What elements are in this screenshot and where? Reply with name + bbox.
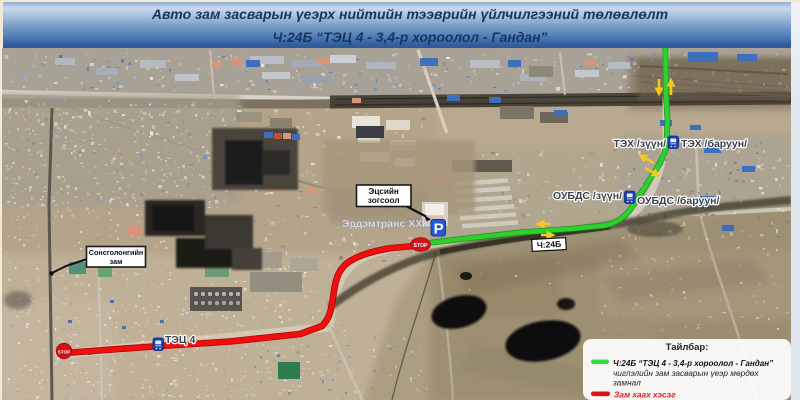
svg-text:Зам хаах хэсэг: Зам хаах хэсэг [614,390,676,400]
svg-text:ТЭЦ 4: ТЭЦ 4 [165,334,195,346]
svg-text:STOP: STOP [413,243,428,249]
svg-text:Сонсголонгийн: Сонсголонгийн [89,248,143,257]
svg-text:Ч:24Б “ТЭЦ 4 - 3,4-р хороолол: Ч:24Б “ТЭЦ 4 - 3,4-р хороолол - Гандан” [613,359,774,368]
svg-text:STOP: STOP [58,349,70,354]
svg-text:ОУБДС /баруун/: ОУБДС /баруун/ [637,195,720,207]
svg-text:Эцсийн: Эцсийн [369,187,399,196]
svg-text:ТЭХ /зүүн/: ТЭХ /зүүн/ [613,138,666,150]
svg-text:замнал: замнал [612,378,641,388]
svg-text:зам: зам [110,257,123,266]
svg-text:ОУБДС /зүүн/: ОУБДС /зүүн/ [553,190,622,202]
svg-text:чиглэлийн зам засварын үеэр м: чиглэлийн зам засварын үеэр мөрдөх [613,368,759,378]
svg-text:Ч:24Б: Ч:24Б [537,239,562,250]
svg-text:Тайлбар:: Тайлбар: [666,342,709,353]
svg-text:зогсоол: зогсоол [368,196,400,205]
svg-text:P: P [434,221,444,238]
svg-text:Эрдэмтранс ХХК: Эрдэмтранс ХХК [342,218,429,230]
svg-text:ТЭХ /баруун/: ТЭХ /баруун/ [681,138,747,150]
